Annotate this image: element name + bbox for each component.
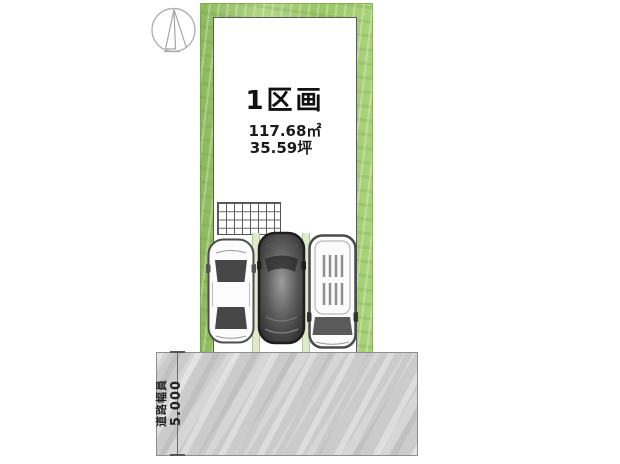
- road-dimension-tick-top: [170, 351, 185, 353]
- road-surface: [156, 352, 418, 456]
- car-white-sedan-icon: [206, 237, 256, 345]
- road-dimension-tick-bottom: [170, 454, 185, 456]
- road-width-label: 道路幅員: [155, 366, 169, 440]
- site-plan-canvas: 1区画 117.68㎡ 35.59坪: [0, 0, 620, 464]
- road-width-value: 5.000: [169, 366, 185, 440]
- lot-label: 1区画: [213, 80, 357, 117]
- lot-area-tsubo: 35.59坪: [209, 137, 353, 158]
- car-white-van-icon: [307, 233, 358, 350]
- road-width-annotation: 道路幅員 5.000: [155, 366, 191, 440]
- north-compass-icon: [149, 4, 199, 56]
- car-dark-sedan-icon: [257, 231, 306, 345]
